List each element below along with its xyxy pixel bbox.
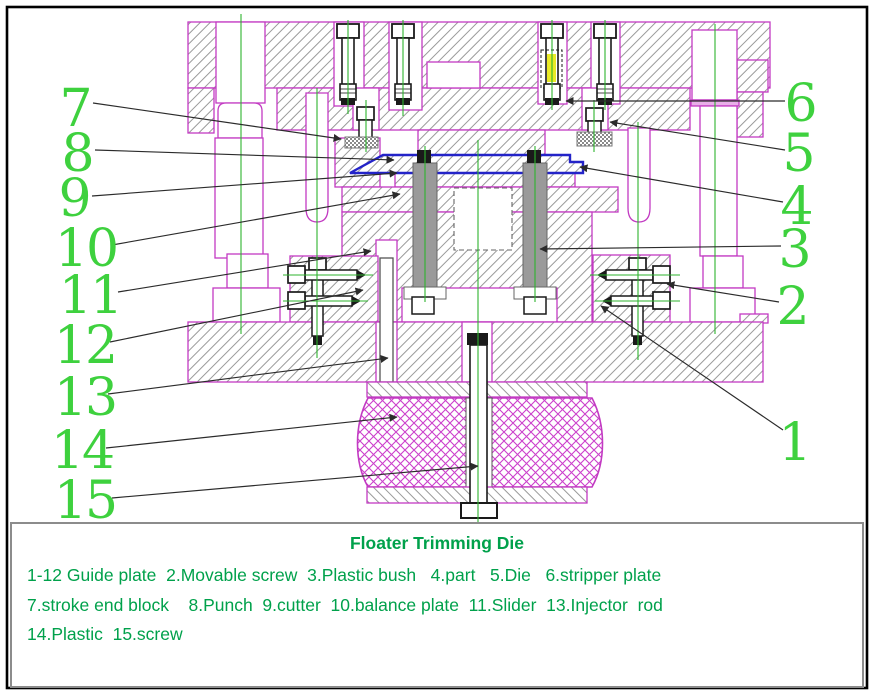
- spring-hole-right: [628, 128, 650, 222]
- injector-rod: [380, 258, 393, 382]
- guide-post-left: [213, 138, 280, 322]
- callout-number-5: 5: [782, 124, 813, 184]
- callout-number-3: 3: [778, 220, 809, 280]
- legend-line-2: 7.stroke end block 8.Punch 9.cutter 10.b…: [27, 591, 847, 621]
- legend: 1-12 Guide plate 2.Movable screw 3.Plast…: [12, 561, 862, 650]
- diagram-title: Floater Trimming Die: [12, 533, 862, 554]
- callout-number-13: 13: [54, 368, 116, 428]
- callout-number-1: 1: [778, 413, 809, 473]
- legend-line-3: 14.Plastic 15.screw: [27, 620, 847, 650]
- caption-box: Floater Trimming Die 1-12 Guide plate 2.…: [10, 522, 864, 688]
- hidden-cavity-outline: [454, 188, 512, 250]
- callout-number-2: 2: [776, 277, 807, 337]
- guide-post-right: [690, 106, 768, 323]
- leader-line-14: [106, 417, 397, 448]
- legend-line-1: 1-12 Guide plate 2.Movable screw 3.Plast…: [27, 561, 847, 591]
- trimmed-part: [350, 155, 583, 173]
- screenshot-root: 789101112131415654321 Floater Trimming D…: [0, 0, 874, 696]
- callout-number-12: 12: [54, 316, 116, 376]
